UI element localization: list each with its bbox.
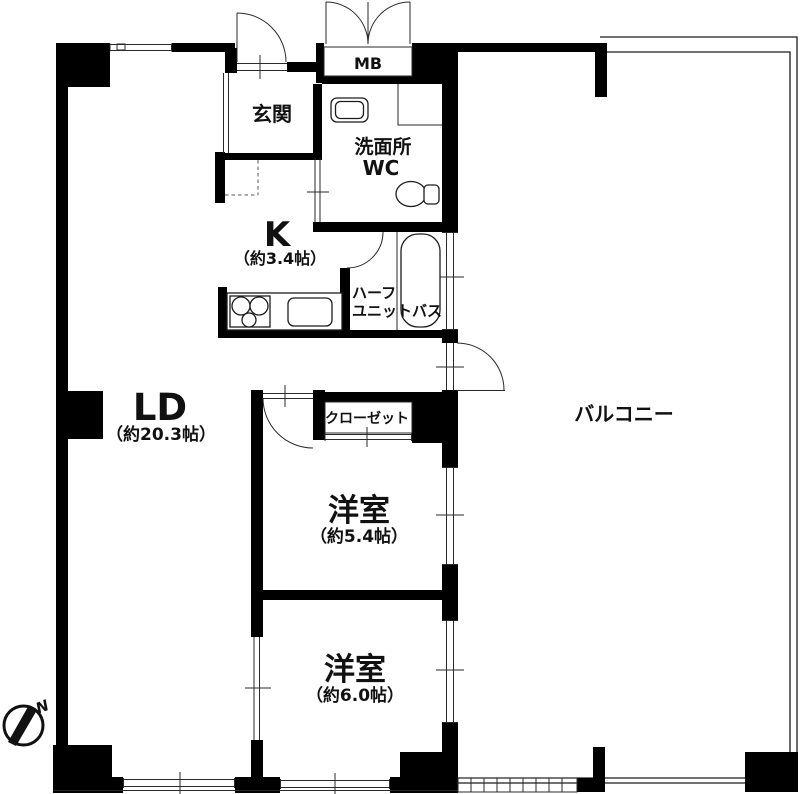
room-size-bedroom1: （約5.4帖） [310,526,408,547]
room-label-bedroom2: 洋室 [324,652,386,688]
room-label-washroom-line1: 洗面所 [354,135,411,158]
kitchen-counter [227,293,342,330]
room-size-living-dining: （約20.3帖） [106,424,216,445]
room-size-kitchen: （約3.4帖） [234,249,326,268]
kitchen-sink [288,298,332,326]
floor-plan: N 玄関 MB 洗面所 WC K （約3.4帖） ハーフ ユニットバス LD （… [0,0,800,794]
room-label-closet: クローゼット [325,410,409,427]
room-label-balcony: バルコニー [574,402,674,426]
floor-plan-drawing: N 玄関 MB 洗面所 WC K （約3.4帖） ハーフ ユニットバス LD （… [0,0,800,794]
room-label-living-dining: LD [133,386,187,429]
room-label-bath-line1: ハーフ [352,284,396,302]
room-label-washroom-line2: WC [363,156,400,180]
label-meter-box: MB [354,54,382,73]
room-size-bedroom2: （約6.0帖） [306,685,404,706]
sink-basin [336,102,364,119]
room-label-bedroom1: 洋室 [328,493,390,529]
room-label-bath-line2: ユニットバス [352,302,442,320]
toilet [396,182,439,207]
room-label-entrance: 玄関 [252,102,292,126]
